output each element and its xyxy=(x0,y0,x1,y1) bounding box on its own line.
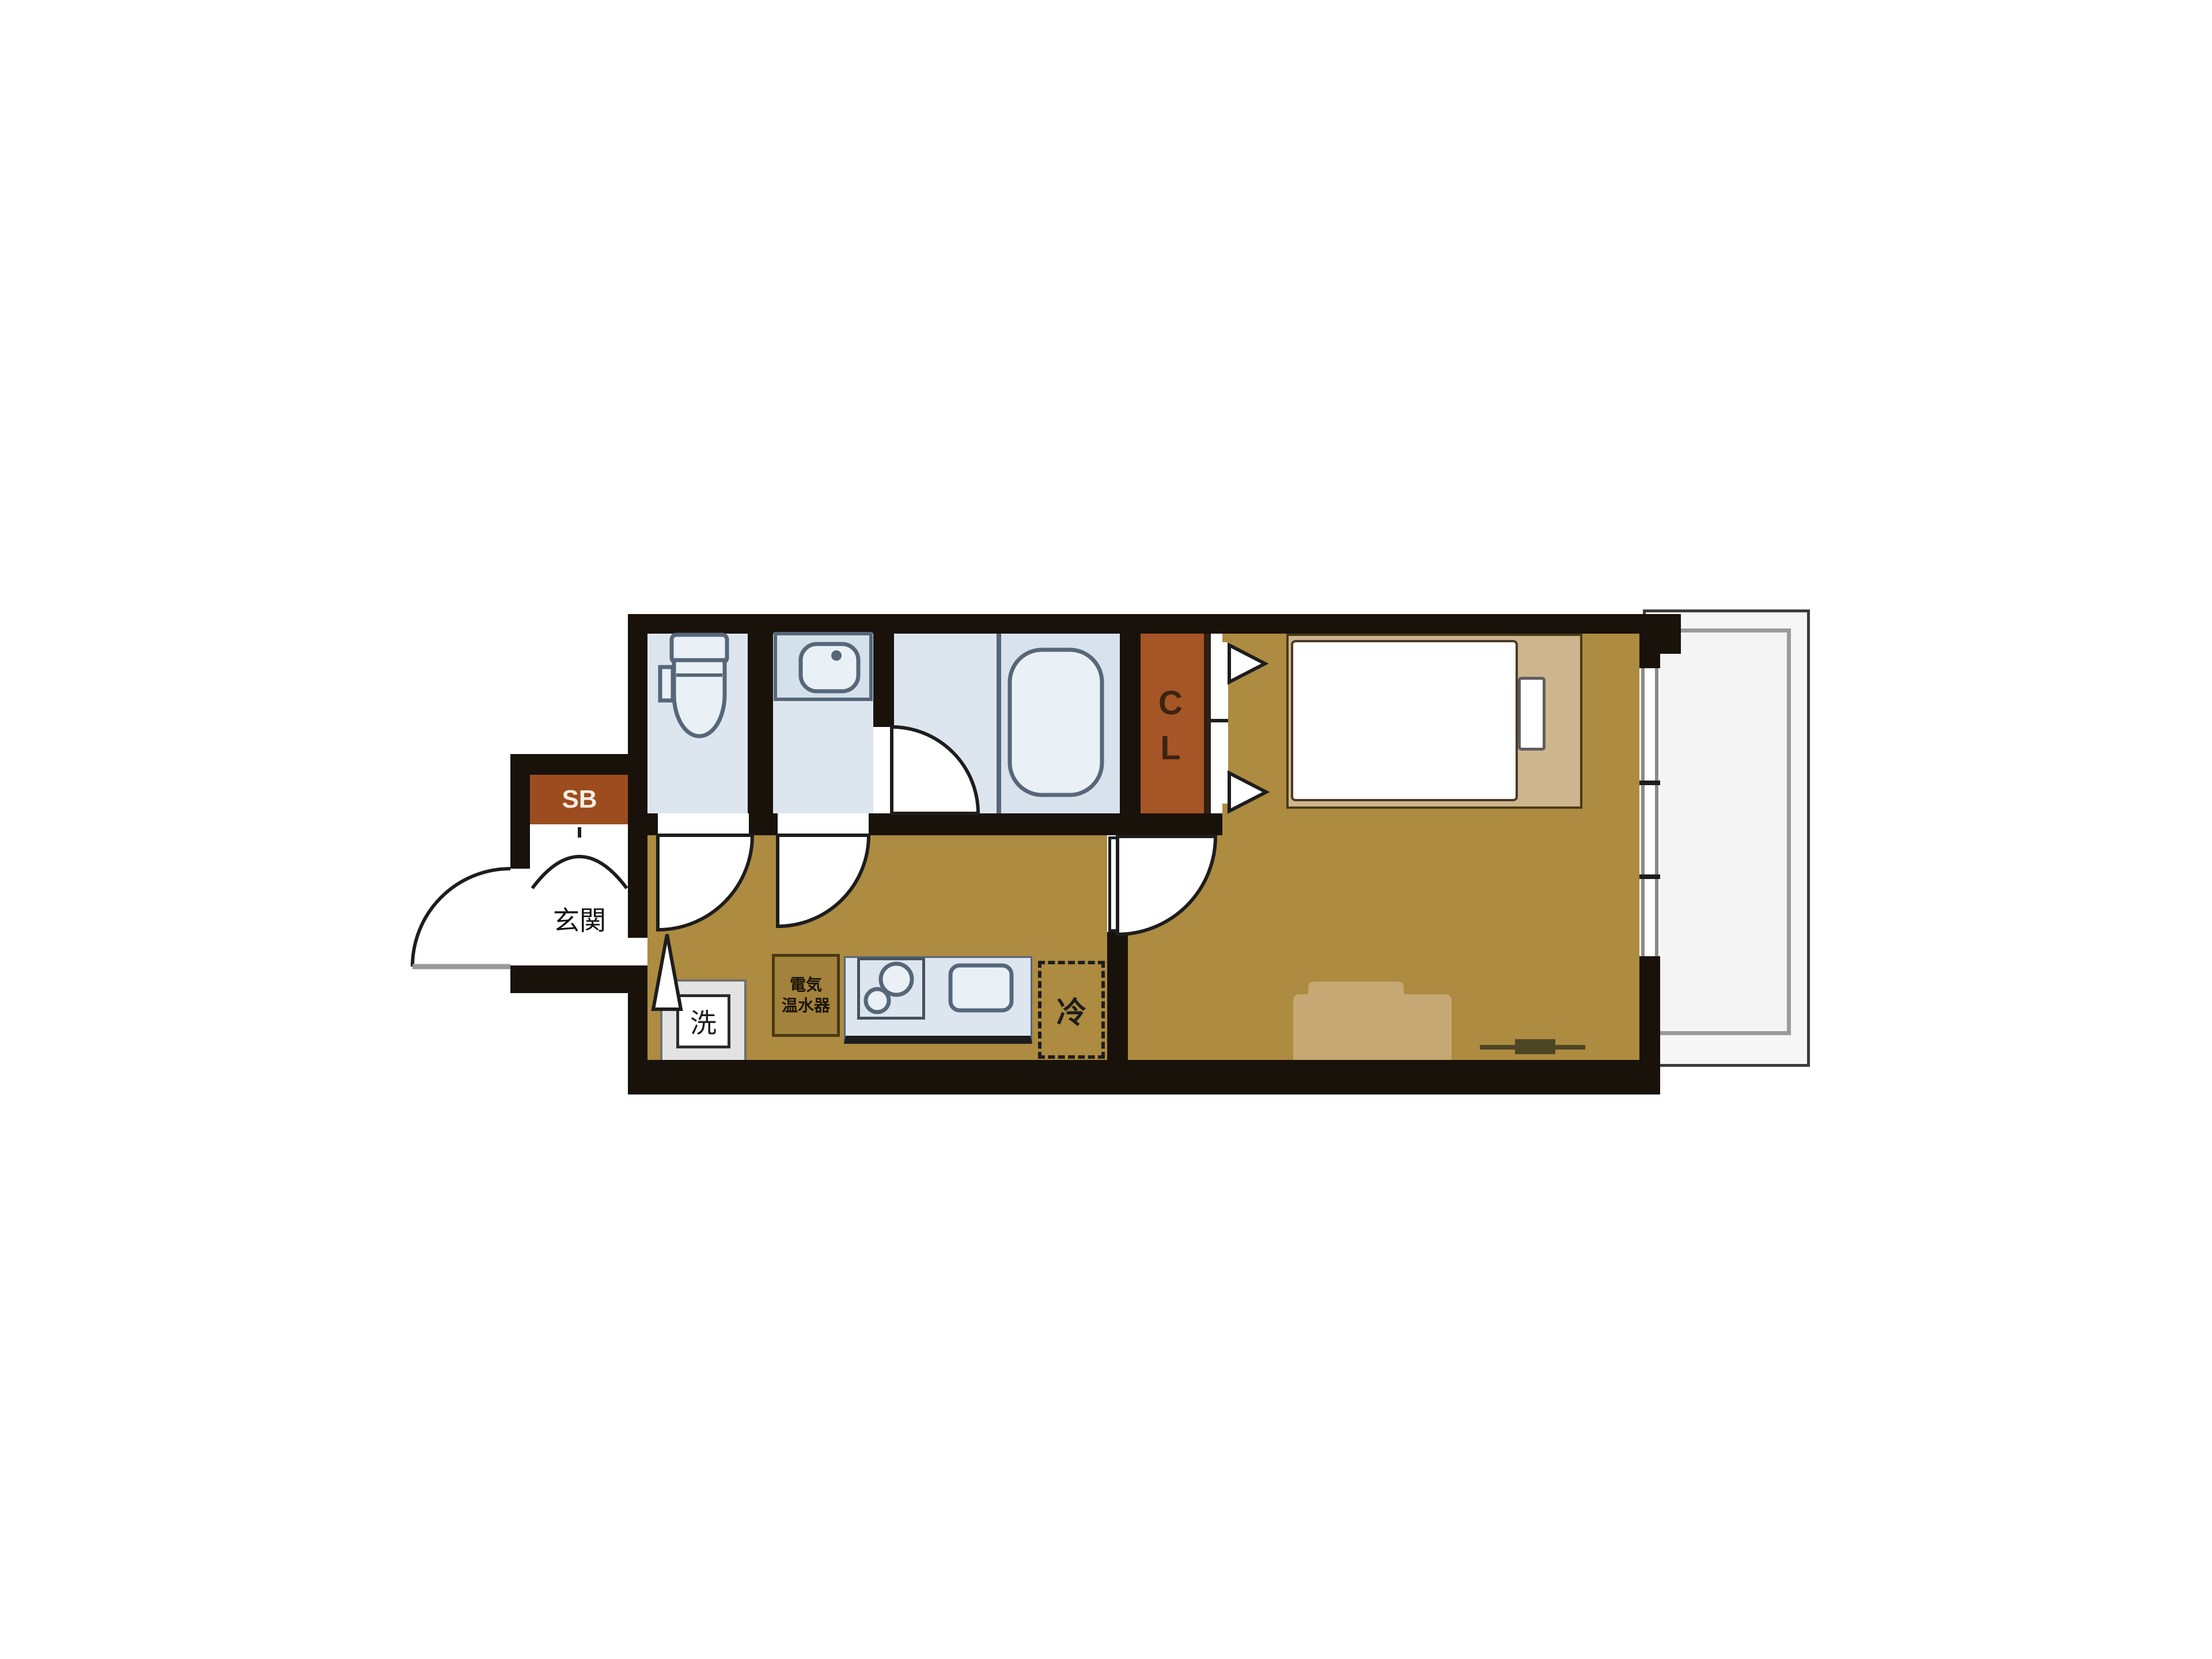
floor-plan-page: 電気 温水器 洗 冷 xyxy=(0,0,2212,1659)
washbasin-faucet xyxy=(831,650,842,661)
toilet-arm xyxy=(660,667,673,700)
floor-socket-marker-box xyxy=(1515,1039,1555,1054)
kitchen-sink-icon xyxy=(950,965,1012,1010)
plan-symbol-overlay xyxy=(0,0,2212,1659)
door-swing-arc-icon-toilet xyxy=(658,835,752,930)
entrance-step-curve-icon xyxy=(532,857,627,888)
shoe-box-text: SB xyxy=(562,785,597,814)
door-swing-arc-icon-washbasin xyxy=(778,835,869,926)
door-swing-arc-icon-bedroom xyxy=(1118,836,1215,934)
closet-label: C L xyxy=(1141,668,1200,783)
shoe-box-label: SB xyxy=(530,777,629,823)
floor-plan: 電気 温水器 洗 冷 xyxy=(0,0,2212,1659)
stove-burner-small xyxy=(866,989,889,1012)
door-swing-arc-icon-bath xyxy=(892,727,978,813)
washbasin-icon xyxy=(801,644,858,691)
closet-folding-door-icon-top xyxy=(1229,645,1265,682)
entrance-text: 玄関 xyxy=(553,900,606,938)
toilet-bowl xyxy=(674,660,725,736)
closet-folding-door-icon-bottom xyxy=(1229,773,1266,811)
bathtub-icon xyxy=(1010,650,1102,795)
step-up-triangle-icon xyxy=(653,934,681,1009)
closet-text-c: C xyxy=(1158,681,1183,726)
entrance-label: 玄関 xyxy=(530,899,629,939)
entrance-door-arc-icon xyxy=(412,869,510,967)
closet-text-l: L xyxy=(1160,726,1180,771)
